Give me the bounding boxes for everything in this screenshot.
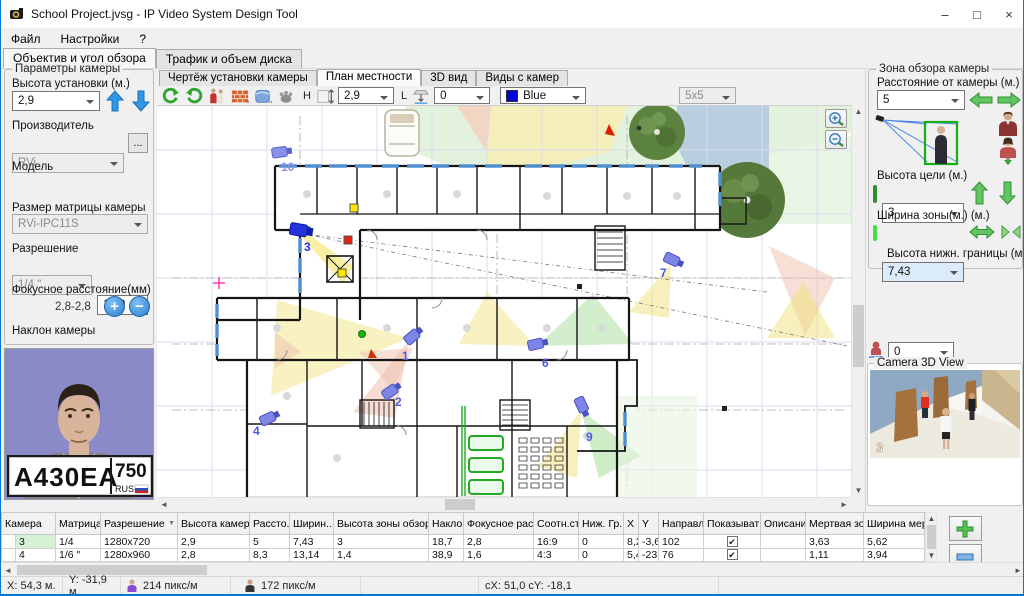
show-checkbox-cell[interactable]: ✔ (704, 548, 761, 561)
lower-camera-icon[interactable] (131, 90, 151, 112)
plan-tab-strip: Чертёж установки камеры План местности 3… (157, 69, 865, 86)
model-combo[interactable]: RVi-IPC11S (12, 214, 148, 234)
col-dead-zone-width[interactable]: Ширина мертв (864, 513, 925, 535)
table-header-row: Камера Матрица Разрешение▼ Высота камеры… (2, 513, 925, 535)
cell: 76 (659, 548, 704, 561)
col-direction[interactable]: Направле... (659, 513, 704, 535)
cell: 3,63 (806, 535, 864, 548)
scroll-right-arrow[interactable]: ► (1013, 566, 1023, 575)
svg-text:10: 10 (281, 160, 295, 174)
tab-camera-views[interactable]: Виды с камер (476, 70, 568, 86)
camera-3d-view-panel: Camera 3D View 3 (867, 363, 1023, 506)
main-tab-strip: Объектив и угол обзора Трафик и объем ди… (1, 49, 1024, 69)
menu-help[interactable]: ? (129, 30, 156, 48)
camera-table-area: Камера Матрица Разрешение▼ Высота камеры… (1, 512, 1024, 562)
scroll-down-arrow[interactable]: ▼ (852, 486, 865, 495)
col-camera[interactable]: Камера (2, 513, 56, 535)
focal-label: Фокусное расстояние(мм) (12, 284, 151, 296)
cell: 102 (659, 535, 704, 548)
status-person-density: 172 пикс/м (231, 577, 361, 594)
target-height-label: Высота цели (м.) (877, 170, 967, 182)
cell: 16:9 (534, 535, 579, 548)
box-tool-icon[interactable] (253, 87, 273, 105)
body-person-icon (245, 579, 255, 593)
table-horizontal-scrollbar[interactable]: ◄ ► (1, 562, 1024, 576)
col-lower-bound[interactable]: Ниж. Гр... (579, 513, 624, 535)
show-checkbox[interactable]: ✔ (727, 536, 738, 547)
cell: 4:3 (534, 548, 579, 561)
manufacturer-label: Производитель (12, 120, 94, 132)
level-icon (411, 87, 431, 105)
svg-text:RUS: RUS (115, 484, 134, 494)
level-combo[interactable]: 0 (434, 87, 490, 104)
status-bar: X: 54,3 м. Y: -31,9 м. 214 пикс/м 172 пи… (1, 576, 1024, 594)
cell: 3 (16, 535, 56, 548)
cell: 3 (334, 535, 429, 548)
status-face-density: 214 пикс/м (121, 577, 231, 594)
color-combo[interactable]: Blue (500, 87, 586, 104)
tilt-label: Наклон камеры (12, 325, 95, 337)
zone-width-combo[interactable]: 7,43 (882, 262, 964, 282)
col-resolution[interactable]: Разрешение▼ (101, 513, 178, 535)
col-description[interactable]: Описание (761, 513, 806, 535)
cell: 5,4 (624, 548, 639, 561)
license-plate: А430ЕА 750 RUS (7, 455, 153, 497)
color-value: Blue (523, 90, 546, 102)
grid-size-combo[interactable]: 5x5 (679, 87, 736, 104)
menu-settings[interactable]: Настройки (51, 30, 130, 48)
distance-decrease-icon[interactable] (969, 92, 993, 108)
height-decrease-icon[interactable] (999, 181, 1016, 205)
distance-combo[interactable]: 5 (877, 90, 965, 110)
menu-bar: Файл Настройки ? (1, 28, 1024, 49)
show-checkbox[interactable]: ✔ (727, 549, 738, 560)
camera-3d-view-title: Camera 3D View (874, 357, 967, 369)
cell: 1,11 (806, 548, 864, 561)
cell (761, 548, 806, 561)
tree (629, 106, 685, 160)
zone-width-label: Ширина зоны(м.) (м.) (877, 210, 990, 222)
svg-text:3: 3 (876, 440, 883, 455)
rotate-ccw-icon[interactable] (161, 87, 181, 105)
app-icon (9, 6, 25, 22)
target-portrait: А430ЕА 750 RUS (4, 348, 154, 500)
target-height-bar (873, 185, 877, 203)
cell: 2,9 (178, 535, 250, 548)
cell: 18,7 (429, 535, 464, 548)
cell: -3,6 (639, 535, 659, 548)
tab-site-plan[interactable]: План местности (317, 69, 421, 86)
svg-text:9: 9 (586, 430, 593, 444)
col-matrix[interactable]: Матрица (56, 513, 101, 535)
cell: 13,14 (290, 548, 334, 561)
col-tilt[interactable]: Наклон (429, 513, 464, 535)
people-tool-icon[interactable] (207, 87, 227, 105)
plan-horizontal-scrollbar[interactable]: ◄ ► (157, 497, 851, 510)
l-label: L (401, 90, 407, 102)
face-person-icon (127, 579, 137, 593)
plan-toolbar: H 2,9 L 0 Blue 5x5 (157, 86, 865, 105)
status-y: Y: -31,9 м. (63, 577, 121, 594)
col-x[interactable]: X (624, 513, 639, 535)
stamp-tool-icon[interactable] (276, 87, 296, 105)
minimize-button[interactable]: – (929, 0, 961, 28)
minus-icon (956, 553, 974, 561)
svg-text:3: 3 (304, 240, 311, 254)
zoom-out-button[interactable] (825, 130, 847, 149)
view-zone-title: Зона обзора камеры (876, 63, 992, 75)
distance-increase-icon[interactable] (997, 92, 1021, 108)
wall-height-icon (315, 87, 335, 105)
floor-plan-canvas[interactable]: 1 2 3 4 6 7 9 10 (157, 105, 851, 497)
camera-3d-preview[interactable]: 3 (870, 370, 1020, 458)
wall-tool-icon[interactable] (230, 87, 250, 105)
cell: 1280x720 (101, 535, 178, 548)
woman-icon[interactable] (997, 136, 1019, 166)
zoom-in-icon (828, 111, 844, 126)
svg-text:А430ЕА: А430ЕА (14, 462, 118, 492)
widen-zone-icon[interactable] (969, 225, 995, 239)
table-buttons-panel (937, 512, 1024, 562)
col-focal[interactable]: Фокусное расс... (464, 513, 534, 535)
svg-text:1: 1 (402, 349, 409, 363)
cell: 8,3 (250, 548, 290, 561)
floor-plan-drawing: 1 2 3 4 6 7 9 10 (157, 106, 851, 497)
col-zone-height[interactable]: Высота зоны обзора (334, 513, 429, 535)
col-width[interactable]: Ширин... (290, 513, 334, 535)
svg-text:4: 4 (253, 424, 260, 438)
maximize-button[interactable]: □ (961, 0, 993, 28)
cell: 0 (579, 535, 624, 548)
man-icon[interactable] (997, 110, 1019, 136)
rotate-cw-icon[interactable] (184, 87, 204, 105)
title-bar: School Project.jvsg - IP Video System De… (1, 0, 1024, 28)
focal-plus-button[interactable]: + (104, 296, 125, 317)
status-x: X: 54,3 м. (1, 577, 63, 594)
cell: 1280x960 (101, 548, 178, 561)
status-spacer (361, 577, 479, 594)
fov-diagram (875, 114, 975, 170)
narrow-zone-icon[interactable] (999, 225, 1023, 239)
application-window: School Project.jvsg - IP Video System De… (0, 0, 1024, 596)
camera-params-panel: Параметры камеры Высота установки (м.) 2… (1, 69, 157, 512)
scroll-left-arrow[interactable]: ◄ (159, 500, 169, 509)
tab-camera-drawing[interactable]: Чертёж установки камеры (159, 70, 317, 86)
focal-range-label: 2,8-2,8 (55, 301, 91, 313)
cell: 4 (16, 548, 56, 561)
raise-camera-icon[interactable] (105, 90, 125, 112)
plus-icon (956, 520, 974, 538)
cell: 1/6 " (56, 548, 101, 561)
close-button[interactable]: × (993, 0, 1024, 28)
sensor-label: Размер матрицы камеры (12, 202, 146, 214)
plan-vertical-scrollbar[interactable]: ▲ ▼ (851, 105, 864, 497)
height-increase-icon[interactable] (971, 181, 988, 205)
col-dead-zone[interactable]: Мертвая зона (806, 513, 864, 535)
cell: 1/4 (56, 535, 101, 548)
color-swatch (506, 90, 518, 102)
cell (761, 535, 806, 548)
cell: 7,43 (290, 535, 334, 548)
scroll-up-arrow[interactable]: ▲ (852, 107, 865, 116)
car (385, 110, 419, 156)
cell: -23,7 (639, 548, 659, 561)
h-label: H (303, 90, 311, 102)
cell: 1,6 (464, 548, 534, 561)
table-row[interactable]: 4 1/6 " 1280x960 2,8 8,3 13,14 1,4 38,9 … (2, 548, 925, 561)
manufacturer-more-button[interactable]: ... (128, 133, 148, 153)
zoom-in-button[interactable] (825, 109, 847, 128)
cell: 38,9 (429, 548, 464, 561)
sort-icon: ▼ (168, 520, 175, 527)
row-selector[interactable] (2, 548, 16, 561)
cell: 8,2 (624, 535, 639, 548)
svg-text:6: 6 (542, 356, 549, 370)
zoom-out-icon (828, 132, 844, 147)
scroll-left-arrow[interactable]: ◄ (3, 566, 13, 575)
cell: 3,94 (864, 548, 925, 561)
col-camera-height[interactable]: Высота камеры (178, 513, 250, 535)
cell: 1,4 (334, 548, 429, 561)
tab-traffic-disk[interactable]: Трафик и объем диска (156, 49, 302, 68)
zone-width-bar (873, 225, 877, 241)
svg-text:750: 750 (115, 461, 147, 482)
svg-text:7: 7 (660, 266, 667, 280)
cell: 0 (579, 548, 624, 561)
focal-minus-button[interactable]: − (129, 296, 150, 317)
table-vertical-scrollbar[interactable]: ▲ ▼ (925, 512, 937, 562)
menu-file[interactable]: Файл (1, 30, 51, 48)
scroll-right-arrow[interactable]: ► (839, 500, 849, 509)
col-show[interactable]: Показывать (704, 513, 761, 535)
distance-label: Расстояние от камеры (м.) (877, 77, 1020, 89)
model-label: Модель (12, 161, 53, 173)
mount-height-label: Высота установки (м.) (12, 78, 130, 90)
camera-table[interactable]: Камера Матрица Разрешение▼ Высота камеры… (1, 512, 925, 562)
cell: 2,8 (464, 535, 534, 548)
resolution-label: Разрешение (12, 243, 78, 255)
mount-height-combo[interactable]: 2,9 (12, 91, 100, 111)
add-camera-button[interactable] (949, 516, 982, 541)
wall-height-combo[interactable]: 2,9 (338, 87, 394, 104)
svg-text:2: 2 (395, 395, 402, 409)
row-selector[interactable] (2, 535, 16, 548)
tab-3d-view[interactable]: 3D вид (421, 70, 476, 86)
col-distance[interactable]: Рассто... (250, 513, 290, 535)
window-title: School Project.jvsg - IP Video System De… (31, 7, 298, 21)
col-y[interactable]: Y (639, 513, 659, 535)
camera-params-title: Параметры камеры (12, 63, 123, 75)
show-checkbox-cell[interactable]: ✔ (704, 535, 761, 548)
table-row[interactable]: 3 1/4 1280x720 2,9 5 7,43 3 18,7 2,8 16:… (2, 535, 925, 548)
status-cursor: cX: 51,0 cY: -18,1 (479, 577, 719, 594)
bottom-height-label: Высота нижн. границы (м.) (887, 248, 1024, 260)
cell: 5,62 (864, 535, 925, 548)
col-aspect[interactable]: Соотн.ст... (534, 513, 579, 535)
cell: 2,8 (178, 548, 250, 561)
cell: 5 (250, 535, 290, 548)
